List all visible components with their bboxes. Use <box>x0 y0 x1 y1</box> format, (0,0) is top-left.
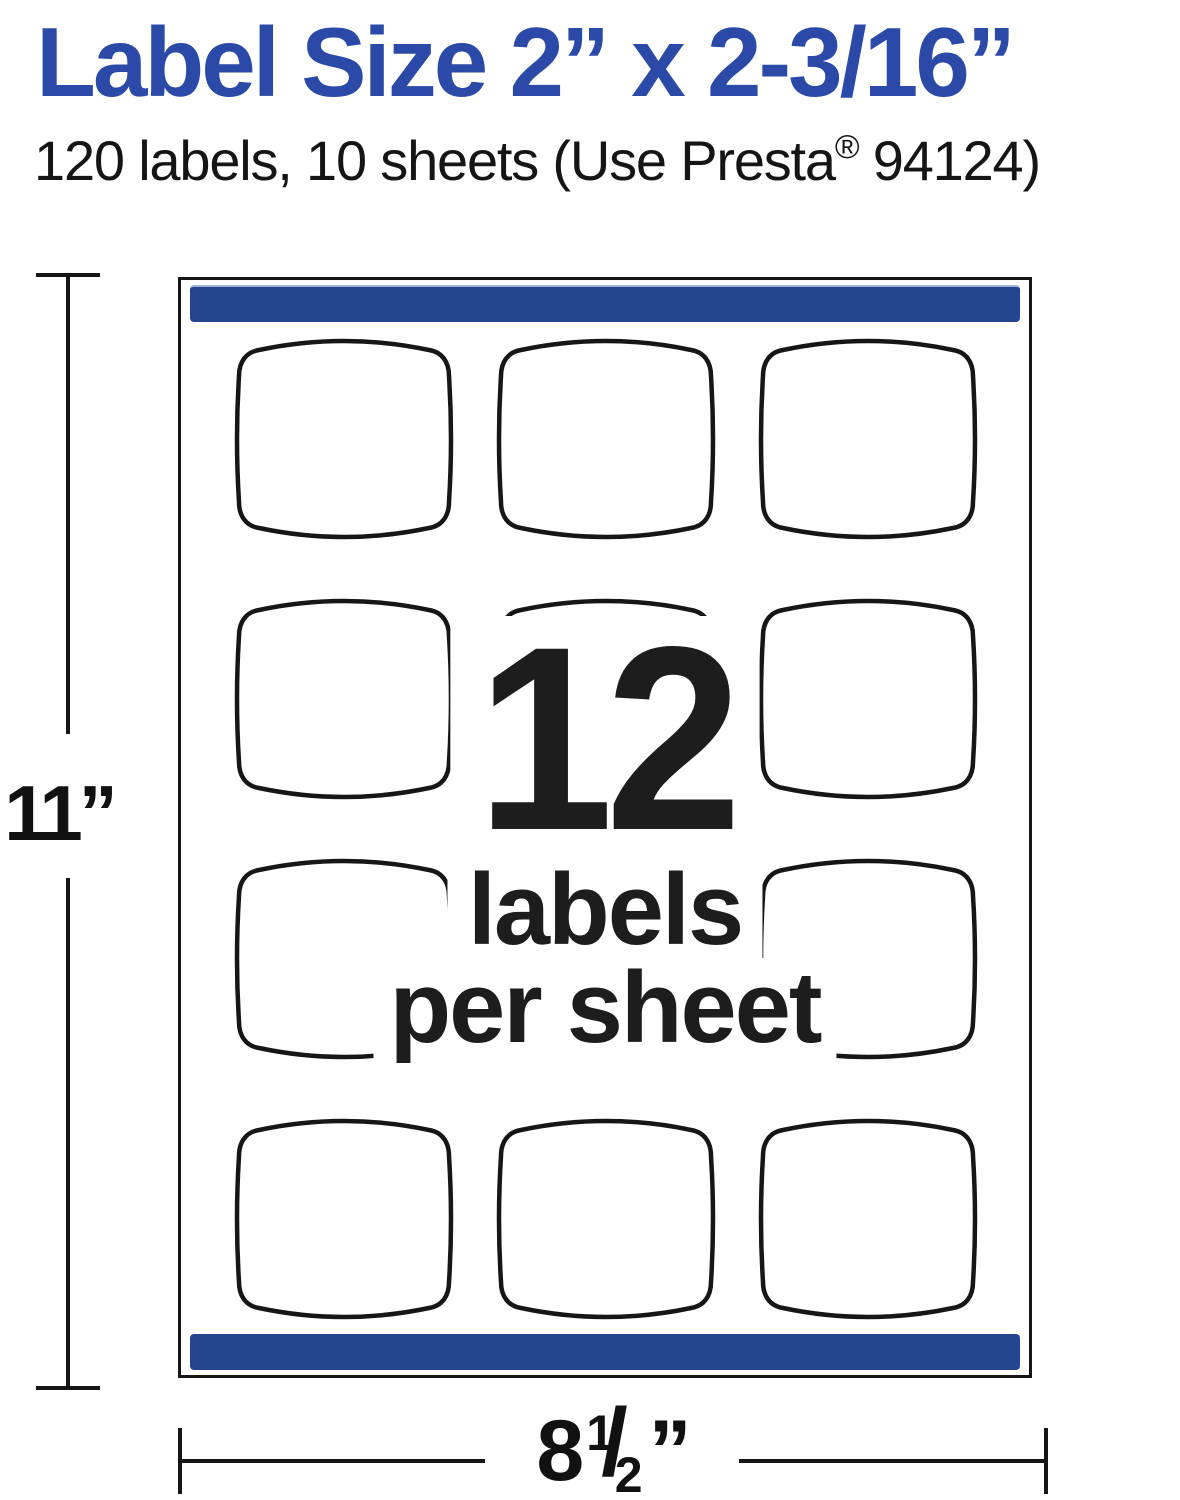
top-edge-strip <box>190 285 1020 322</box>
labels-per-sheet-callout: 12 labels per sheet <box>373 616 836 1074</box>
labels-per-sheet-count: 12 <box>450 616 760 862</box>
height-dim-upper-line <box>66 275 70 734</box>
height-dim-lower-line <box>66 878 70 1388</box>
product-diagram-page: Label Size 2” x 2-3/16” 120 labels, 10 s… <box>0 0 1180 1500</box>
label-outline <box>233 1118 455 1320</box>
sheet-diagram: 12 labels per sheet <box>178 277 1032 1378</box>
width-dim-unit-mark: ” <box>649 1406 692 1496</box>
label-outline <box>233 338 455 540</box>
label-outline <box>495 338 717 540</box>
label-outline <box>495 1118 717 1320</box>
width-dim-whole-number: 8 <box>536 1406 584 1496</box>
width-dim-label: 8 1 / 2 ” <box>488 1406 740 1496</box>
page-subtitle: 120 labels, 10 sheets (Use Presta® 94124… <box>34 128 1040 193</box>
bottom-edge-strip <box>190 1334 1020 1370</box>
height-dim-label: 11” <box>0 768 118 859</box>
label-outline <box>757 338 979 540</box>
registered-trademark-symbol: ® <box>835 129 859 166</box>
width-dim-right-line <box>739 1459 1046 1463</box>
page-title: Label Size 2” x 2-3/16” <box>36 6 1013 119</box>
subtitle-text: 120 labels, 10 sheets (Use Presta <box>34 129 835 192</box>
width-dim-left-line <box>180 1459 485 1463</box>
subtitle-product-number: 94124) <box>858 129 1040 192</box>
label-outline <box>757 1118 979 1320</box>
width-dim-fraction-denominator: 2 <box>615 1450 643 1500</box>
labels-per-sheet-word-per-sheet: per sheet <box>373 958 836 1074</box>
height-dim-bottom-cap <box>36 1386 100 1390</box>
width-dim-right-cap <box>1044 1428 1048 1494</box>
